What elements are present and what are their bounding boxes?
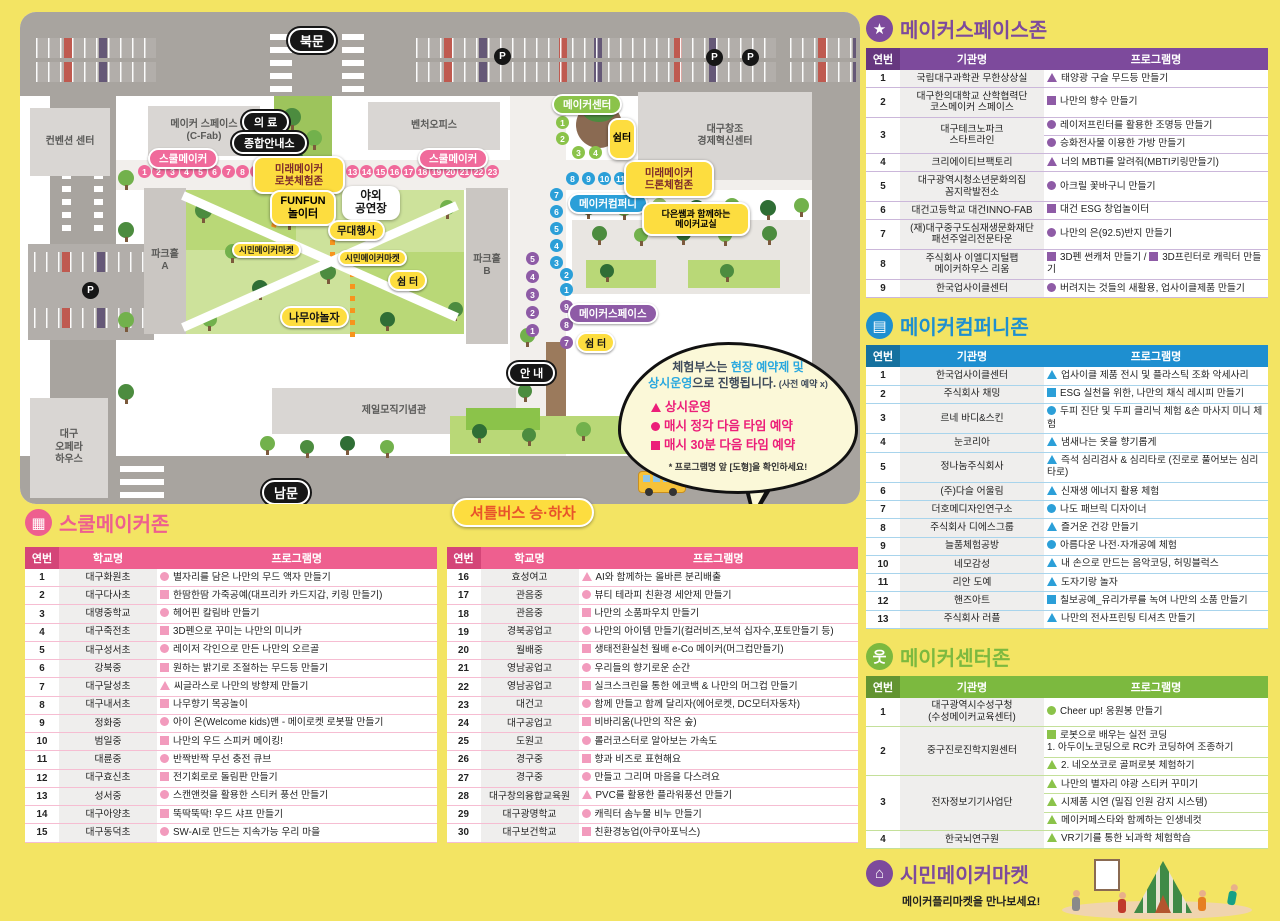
organization-name: 한국업사이클센터: [900, 367, 1044, 385]
program-shape-icon: [1047, 406, 1056, 415]
program-shape-icon: [160, 626, 169, 635]
market-zone-title: ⌂시민메이커마켓: [866, 859, 1056, 888]
program-shape-icon: [160, 644, 169, 653]
row-number: 23: [447, 696, 481, 714]
building-convention-center: 컨벤션 센터: [30, 108, 110, 176]
namu-playground-label: 나무야놀자: [280, 306, 349, 328]
tree-icon: [300, 440, 314, 454]
program-shape-icon: [582, 572, 592, 581]
organization-name: (주)다슬 어울림: [900, 483, 1044, 501]
tree-icon: [518, 384, 532, 398]
bubble-legend-item: 매시 정각 다음 타임 예약: [651, 417, 855, 436]
tree-icon: [794, 198, 809, 213]
column-header: 연번: [866, 345, 900, 367]
info-center-label: 종합안내소: [232, 132, 307, 154]
organization-name: (재)대구중구도심재생문화재단 패션주얼리전문타운: [900, 220, 1044, 250]
table-row: 8대구내서초나무향기 목공놀이: [25, 696, 437, 714]
skateboarder-figure: [1227, 890, 1237, 905]
row-number: 2: [25, 587, 59, 605]
booth-number: 2: [556, 132, 569, 145]
row-number: 5: [866, 172, 900, 202]
tree-icon: [306, 130, 322, 146]
organization-name: 정나눔주식회사: [900, 452, 1044, 482]
booth-number: 15: [374, 165, 387, 178]
program-shape-icon: [582, 699, 591, 708]
organization-name: 대구성서초: [59, 641, 157, 659]
table-row: 27경구중만들고 그리며 마음을 다스려요: [447, 769, 859, 787]
row-number: 8: [866, 519, 900, 537]
row-number: 5: [25, 641, 59, 659]
table-row: 8주식회사 이엘디지털팹 메이커하우스 리움3D펜 썬캐처 만들기 / 3D프린…: [866, 249, 1268, 279]
tree-icon: [380, 312, 395, 327]
program-name: 한땀한땀 가죽공예(대프리카 카드지갑, 키링 만들기): [157, 587, 437, 605]
tree-icon: [762, 226, 777, 241]
program-name: 업사이클 제품 전시 및 플라스틱 조화 악세사리: [1044, 367, 1268, 385]
organization-name: 대구창의융합교육원: [481, 787, 579, 805]
table-row: 14대구아양초뚝딱뚝딱! 우드 샤프 만들기: [25, 806, 437, 824]
program-shape-icon: [1047, 522, 1057, 531]
booth-number: 17: [402, 165, 415, 178]
daeun-class-label: 다은쌤과 함께하는 메이커교실: [642, 202, 750, 236]
booth-number: 10: [598, 172, 611, 185]
rest-area-label-north: 쉼터: [608, 118, 636, 160]
table-row: 7대구달성초씨글라스로 나만의 방향제 만들기: [25, 678, 437, 696]
column-header: 프로그램명: [1044, 48, 1268, 70]
company-zone-section: ▤메이커컴퍼니존연번기관명프로그램명1한국업사이클센터업사이클 제품 전시 및 …: [866, 311, 1268, 629]
row-number: 3: [866, 403, 900, 433]
person-icon: 웃: [866, 643, 893, 670]
organization-name: 대구광역시청소년문화의집 꼼지락발전소: [900, 172, 1044, 202]
reservation-notice-bubble: 체험부스는 현장 예약제 및 상시운영으로 진행됩니다. (사전 예약 x) 상…: [618, 342, 858, 494]
program-shape-icon: [582, 644, 591, 653]
row-number: 21: [447, 660, 481, 678]
column-header: 연번: [25, 547, 59, 569]
program-name: 레이저프린터를 활용한 조명등 만들기: [1044, 117, 1268, 135]
lawn-patch: [586, 260, 656, 288]
row-number: 27: [447, 769, 481, 787]
column-header: 학교명: [59, 547, 157, 569]
program-name: 스캔앤컷을 활용한 스티커 풍선 만들기: [157, 787, 437, 805]
program-shape-icon: [582, 608, 591, 617]
organization-name: 경구중: [481, 769, 579, 787]
program-name: 버려지는 것들의 새활용, 업사이클제품 만들기: [1044, 280, 1268, 298]
program-shape-icon: [582, 626, 591, 635]
row-number: 4: [866, 830, 900, 848]
organization-name: 관음중: [481, 587, 579, 605]
program-name: 내 손으로 만드는 음악코딩, 허밍블럭스: [1044, 555, 1268, 573]
table-row: 4한국뇌연구원VR기기를 통한 뇌과학 체험학습: [866, 830, 1268, 848]
row-number: 8: [25, 696, 59, 714]
center-booth-numbers-1-2: 12: [556, 116, 569, 145]
table-row: 3대명중학교헤어핀 칼림바 만들기: [25, 605, 437, 623]
table-row: 26경구중향과 비즈로 표현해요: [447, 751, 859, 769]
table-row: 21영남공업고우리들의 향기로운 순간: [447, 660, 859, 678]
program-shape-icon: [1047, 833, 1057, 842]
row-number: 2: [866, 727, 900, 776]
row-number: 5: [866, 452, 900, 482]
organization-name: 대구다사초: [59, 587, 157, 605]
crosswalk: [120, 462, 164, 498]
table-row: 15대구동덕초SW-AI로 만드는 지속가능 우리 마을: [25, 824, 437, 842]
organization-name: 늘품체험공방: [900, 537, 1044, 555]
tree-icon: [340, 436, 355, 451]
row-number: 19: [447, 623, 481, 641]
organization-name: 월배중: [481, 641, 579, 659]
row-number: 24: [447, 714, 481, 732]
parking-row: [36, 62, 156, 82]
organization-name: 경북공업고: [481, 623, 579, 641]
booth-number: 6: [550, 205, 563, 218]
row-number: 9: [25, 714, 59, 732]
program-name: 냄새나는 옷을 향기롭게: [1044, 434, 1268, 452]
parking-row: [34, 252, 148, 272]
booth-number: 4: [526, 270, 539, 283]
program-shape-icon: [582, 772, 591, 781]
building-venture-office: 벤처오피스: [368, 102, 500, 150]
row-number: 3: [866, 117, 900, 153]
organization-name: 대명중학교: [59, 605, 157, 623]
table-row: 3대구테크노파크 스타트라인레이저프린터를 활용한 조명등 만들기: [866, 117, 1268, 135]
zone-table: 연번학교명프로그램명1대구화원초별자리를 담은 나만의 무드 액자 만들기2대구…: [25, 547, 437, 843]
row-number: 13: [866, 610, 900, 628]
row-number: 20: [447, 641, 481, 659]
parking-icon: P: [494, 48, 511, 65]
program-shape-icon: [160, 772, 169, 781]
organization-name: 대구죽전초: [59, 623, 157, 641]
table-row: 19경북공업고나만의 아이템 만들기(컬러비즈,보석 십자수,포토만들기 등): [447, 623, 859, 641]
row-number: 7: [866, 501, 900, 519]
table-row: 24대구공업고비바리움(나만의 작은 숲): [447, 714, 859, 732]
program-name: PVC를 활용한 플라워풍선 만들기: [579, 787, 859, 805]
program-name: 우리들의 향기로운 순간: [579, 660, 859, 678]
program-name: 뚝딱뚝딱! 우드 샤프 만들기: [157, 806, 437, 824]
row-number: 17: [447, 587, 481, 605]
program-shape-icon: [1047, 181, 1056, 190]
table-row: 12대구효신초전기회로로 돌림판 만들기: [25, 769, 437, 787]
organization-name: 주식회사 채밍: [900, 385, 1044, 403]
section-title-text: 메이커센터존: [900, 642, 1010, 671]
row-number: 3: [25, 605, 59, 623]
makerspace-zone-section: ★메이커스페이스존연번기관명프로그램명1국립대구과학관 무한상상실태양광 구슬 …: [866, 14, 1268, 298]
row-number: 6: [866, 483, 900, 501]
table-row: 13주식회사 러플나만의 전사프린팅 티셔츠 만들기: [866, 610, 1268, 628]
row-number: 10: [25, 733, 59, 751]
row-number: 2: [866, 385, 900, 403]
booth-number: 2: [560, 268, 573, 281]
row-number: 28: [447, 787, 481, 805]
section-title-text: 메이커컴퍼니존: [900, 311, 1029, 340]
table-row: 13성서중스캔앤컷을 활용한 스티커 풍선 만들기: [25, 787, 437, 805]
booth-number: 23: [486, 165, 499, 178]
program-name: 뷰티 테라피 친환경 세안제 만들기: [579, 587, 859, 605]
program-shape-icon: [160, 790, 169, 799]
table-row: 1대구화원초별자리를 담은 나만의 무드 액자 만들기: [25, 569, 437, 587]
organization-name: 전자정보기기사업단: [900, 776, 1044, 831]
program-name: 나만의 별자리 야광 스티커 꾸미기: [1044, 776, 1268, 794]
row-number: 12: [25, 769, 59, 787]
program-name: 나만의 전사프린팅 티셔츠 만들기: [1044, 610, 1268, 628]
program-shape-icon: [1047, 138, 1056, 147]
table-row: 9정화중아이 온(Welcome kids)맨 - 메이로켓 로봇팔 만들기: [25, 714, 437, 732]
booth-number: 3: [526, 288, 539, 301]
program-name: 나만의 소품파우치 만들기: [579, 605, 859, 623]
booth-number: 1: [560, 283, 573, 296]
row-number: 15: [25, 824, 59, 842]
table-row: 7(재)대구중구도심재생문화재단 패션주얼리전문타운나만의 은(92.5)반지 …: [866, 220, 1268, 250]
school-zone-tables: 연번학교명프로그램명1대구화원초별자리를 담은 나만의 무드 액자 만들기2대구…: [25, 547, 858, 843]
company-zone-title: ▤메이커컴퍼니존: [866, 311, 1268, 340]
parking-row: [790, 62, 856, 82]
row-number: 13: [25, 787, 59, 805]
building-opera-house: 대구 오페라 하우스: [30, 398, 108, 498]
program-shape-icon: [582, 809, 591, 818]
program-name: 원하는 밝기로 조절하는 무드등 만들기: [157, 660, 437, 678]
booth-number: 1: [526, 324, 539, 337]
program-shape-icon: [1149, 252, 1158, 261]
row-number: 6: [866, 201, 900, 219]
row-number: 30: [447, 824, 481, 842]
booth-number: 7: [550, 188, 563, 201]
school-icon: ▦: [25, 509, 52, 536]
program-shape-icon: [1047, 204, 1056, 213]
program-shape-icon: [160, 590, 169, 599]
row-number: 10: [866, 555, 900, 573]
row-number: 4: [866, 154, 900, 172]
program-shape-icon: [582, 827, 591, 836]
organization-name: 대구효신초: [59, 769, 157, 787]
program-shape-icon: [1047, 388, 1056, 397]
program-name: 함께 만들고 함께 달리자(에어로켓, DC모터자동차): [579, 696, 859, 714]
shuttle-stop-label: 셔틀버스 승·하차: [452, 498, 594, 527]
organization-name: 리안 도예: [900, 574, 1044, 592]
row-number: 4: [866, 434, 900, 452]
booth-number: 1: [138, 165, 151, 178]
program-name: 반짝반짝 무선 충전 큐브: [157, 751, 437, 769]
row-number: 14: [25, 806, 59, 824]
parking-icon: P: [82, 282, 99, 299]
drone-zone-label: 미래메이커 드론체험존: [624, 160, 714, 198]
funfun-playground-label: FUNFUN 놀이터: [270, 190, 336, 226]
organization-name: 주식회사 디에스그룹: [900, 519, 1044, 537]
table-row: 16효성여고AI와 함께하는 올바른 분리배출: [447, 569, 859, 587]
legend-shape-icon: [651, 403, 661, 412]
table-row: 4눈코리아냄새나는 옷을 향기롭게: [866, 434, 1268, 452]
organization-name: 범일중: [59, 733, 157, 751]
building-parkhall-a: 파크홀 A: [144, 188, 186, 334]
booth-number: 13: [346, 165, 359, 178]
program-shape-icon: [1047, 730, 1056, 739]
market-illustration: [1056, 859, 1268, 921]
booth-number: 8: [236, 165, 249, 178]
row-number: 3: [866, 776, 900, 831]
program-name: 두피 진단 및 두피 클리닉 체험 &손 마사지 미니 체험: [1044, 403, 1268, 433]
column-header: 프로그램명: [157, 547, 437, 569]
space-booth-numbers-1-5: 54321: [526, 252, 539, 337]
person-figure: [1118, 899, 1126, 913]
booth-number: 7: [222, 165, 235, 178]
row-number: 16: [447, 569, 481, 587]
tree-icon: [592, 226, 607, 241]
organization-name: 대구달성초: [59, 678, 157, 696]
organization-name: 관음중: [481, 605, 579, 623]
program-shape-icon: [1047, 540, 1056, 549]
column-header: 기관명: [900, 676, 1044, 698]
school-maker-pill-east: 스쿨메이커: [418, 148, 488, 169]
legend-shape-icon: [651, 441, 660, 450]
program-shape-icon: [1047, 73, 1057, 82]
bubble-legend-items: 상시운영매시 정각 다음 타임 예약매시 30분 다음 타임 예약: [651, 398, 855, 454]
rest-area-label-mid: 쉼 터: [576, 332, 615, 353]
section-title-text: 스쿨메이커존: [59, 508, 169, 537]
market-icon: ⌂: [866, 860, 893, 887]
booth-number: 7: [560, 336, 573, 349]
organization-name: 크리에이티브팩토리: [900, 154, 1044, 172]
program-shape-icon: [160, 699, 169, 708]
row-number: 18: [447, 605, 481, 623]
company-booth-numbers-1-2: 21: [560, 268, 573, 296]
center-zone-section: 웃메이커센터존연번기관명프로그램명1대구광역시수성구청 (수성메이커교육센터)C…: [866, 642, 1268, 849]
program-name: Cheer up! 응원봉 만들기: [1044, 698, 1268, 727]
program-shape-icon: [1047, 779, 1057, 788]
row-number: 22: [447, 678, 481, 696]
table-row: 6(주)다슬 어울림신재생 에너지 활용 체험: [866, 483, 1268, 501]
row-number: 26: [447, 751, 481, 769]
table-row: 29대구광명학교캐릭터 솜누물 비누 만들기: [447, 806, 859, 824]
rest-area-label-plaza: 쉼 터: [388, 270, 427, 291]
program-shape-icon: [1047, 815, 1057, 824]
makerspace-zone-title: ★메이커스페이스존: [866, 14, 1268, 43]
program-shape-icon: [1047, 437, 1057, 446]
column-header: 프로그램명: [1044, 345, 1268, 367]
column-header: 연번: [866, 48, 900, 70]
tree-icon: [760, 200, 776, 216]
organization-name: 대구동덕초: [59, 824, 157, 842]
row-number: 11: [25, 751, 59, 769]
table-row: 11리안 도예도자기랑 놀자: [866, 574, 1268, 592]
organization-name: 정화중: [59, 714, 157, 732]
program-shape-icon: [160, 809, 169, 818]
tree-icon: [576, 422, 591, 437]
maker-space-pill: 메이커스페이스: [568, 303, 658, 324]
booth-number: 4: [550, 239, 563, 252]
table-row: 12핸즈아트칠보공예_유리가루를 녹여 나만의 소품 만들기: [866, 592, 1268, 610]
organization-name: 대구광명학교: [481, 806, 579, 824]
program-shape-icon: [1047, 797, 1057, 806]
program-shape-icon: [1047, 370, 1057, 379]
row-number: 4: [25, 623, 59, 641]
program-shape-icon: [1047, 760, 1057, 769]
program-shape-icon: [582, 681, 591, 690]
table-row: 5대구성서초레이저 각인으로 만든 나만의 오르골: [25, 641, 437, 659]
tree-icon: [118, 170, 134, 186]
program-name: 전기회로로 돌림판 만들기: [157, 769, 437, 787]
table-row: 3전자정보기기사업단나만의 별자리 야광 스티커 꾸미기: [866, 776, 1268, 794]
organization-name: 중구진로진학지원센터: [900, 727, 1044, 776]
program-name: 3D펜 썬캐처 만들기 / 3D프린터로 캐릭터 만들기: [1044, 249, 1268, 279]
column-header: 프로그램명: [579, 547, 859, 569]
robot-zone-label: 미래메이커 로봇체험존: [253, 156, 345, 194]
event-guide-poster: { "map": { "labels": { "north_gate": "북문…: [0, 0, 1280, 908]
program-name: 나도 패브릭 디자이너: [1044, 501, 1268, 519]
program-name: 칠보공예_유리가루를 녹여 나만의 소품 만들기: [1044, 592, 1268, 610]
tree-icon: [600, 264, 614, 278]
zone-table: 연번기관명프로그램명1국립대구과학관 무한상상실태양광 구슬 무드등 만들기2대…: [866, 48, 1268, 298]
event-site-map: P P P P 메이커 스페이스 (C-Fab) 벤처오피스 대구창조 경제혁신…: [20, 12, 860, 504]
program-shape-icon: [582, 790, 592, 799]
row-number: 2: [866, 88, 900, 118]
booth-number: 3: [572, 146, 585, 159]
south-gate-label: 남문: [262, 480, 310, 504]
citizen-market-label-east: 시민메이커마켓: [338, 250, 407, 266]
organization-name: 대구한의대학교 산학협력단 코스메이커 스페이스: [900, 88, 1044, 118]
program-name: 생태전환실천 월배 e-Co 메이커(머그컵만들기): [579, 641, 859, 659]
citizen-market-label-west: 시민메이커마켓: [232, 242, 301, 258]
school-zone-title: ▦스쿨메이커존: [25, 508, 169, 537]
program-name: 별자리를 담은 나만의 무드 액자 만들기: [157, 569, 437, 587]
organization-name: 한국업사이클센터: [900, 280, 1044, 298]
column-header: 프로그램명: [1044, 676, 1268, 698]
bubble-legend-item: 매시 30분 다음 타임 예약: [651, 436, 855, 455]
column-header: 학교명: [481, 547, 579, 569]
program-shape-icon: [1047, 577, 1057, 586]
row-number: 8: [866, 249, 900, 279]
market-banner: [1094, 859, 1120, 891]
organization-name: 대구아양초: [59, 806, 157, 824]
table-row: 6강북중원하는 밝기로 조절하는 무드등 만들기: [25, 660, 437, 678]
table-row: 6대건고등학교 대건INNO-FAB대건 ESG 창업놀이터: [866, 201, 1268, 219]
market-subtitle: 메이커플리마켓을 만나보세요!: [902, 893, 1056, 909]
program-name: VR기기를 통한 뇌과학 체험학습: [1044, 830, 1268, 848]
organization-name: 경구중: [481, 751, 579, 769]
organization-name: 국립대구과학관 무한상상실: [900, 70, 1044, 88]
table-row: 5대구광역시청소년문화의집 꼼지락발전소아크릴 꽃바구니 만들기: [866, 172, 1268, 202]
table-row: 9늘품체험공방아름다운 나전·자개공예 체험: [866, 537, 1268, 555]
organization-name: 네모감성: [900, 555, 1044, 573]
booth-number: 5: [526, 252, 539, 265]
table-row: 11대륜중반짝반짝 무선 충전 큐브: [25, 751, 437, 769]
row-number: 1: [25, 569, 59, 587]
program-shape-icon: [160, 608, 169, 617]
table-row: 30대구보건학교친환경농업(아쿠아포닉스): [447, 824, 859, 842]
parking-icon: P: [706, 49, 723, 66]
tree-icon: [720, 264, 734, 278]
program-name: 나무향기 목공놀이: [157, 696, 437, 714]
row-number: 7: [25, 678, 59, 696]
program-shape-icon: [160, 736, 169, 745]
table-row: 4대구죽전초3D펜으로 꾸미는 나만의 미니카: [25, 623, 437, 641]
program-shape-icon: [160, 717, 169, 726]
booth-number: 9: [582, 172, 595, 185]
organization-name: 주식회사 이엘디지털팹 메이커하우스 리움: [900, 249, 1044, 279]
program-shape-icon: [1047, 157, 1057, 166]
table-row: 18관음중나만의 소품파우치 만들기: [447, 605, 859, 623]
program-name: 도자기랑 놀자: [1044, 574, 1268, 592]
zone-table: 연번기관명프로그램명1한국업사이클센터업사이클 제품 전시 및 플라스틱 조화 …: [866, 345, 1268, 629]
program-name: 즐거운 건강 만들기: [1044, 519, 1268, 537]
program-shape-icon: [160, 681, 170, 690]
program-shape-icon: [582, 736, 591, 745]
company-icon: ▤: [866, 312, 893, 339]
organization-name: 대구공업고: [481, 714, 579, 732]
column-header: 기관명: [900, 48, 1044, 70]
table-row: 1대구광역시수성구청 (수성메이커교육센터)Cheer up! 응원봉 만들기: [866, 698, 1268, 727]
table-row: 2대구다사초한땀한땀 가죽공예(대프리카 카드지갑, 키링 만들기): [25, 587, 437, 605]
medical-label: 의 료: [242, 111, 289, 133]
column-header: 연번: [866, 676, 900, 698]
table-row: 8주식회사 디에스그룹즐거운 건강 만들기: [866, 519, 1268, 537]
program-shape-icon: [1047, 283, 1056, 292]
program-shape-icon: [1047, 455, 1057, 464]
